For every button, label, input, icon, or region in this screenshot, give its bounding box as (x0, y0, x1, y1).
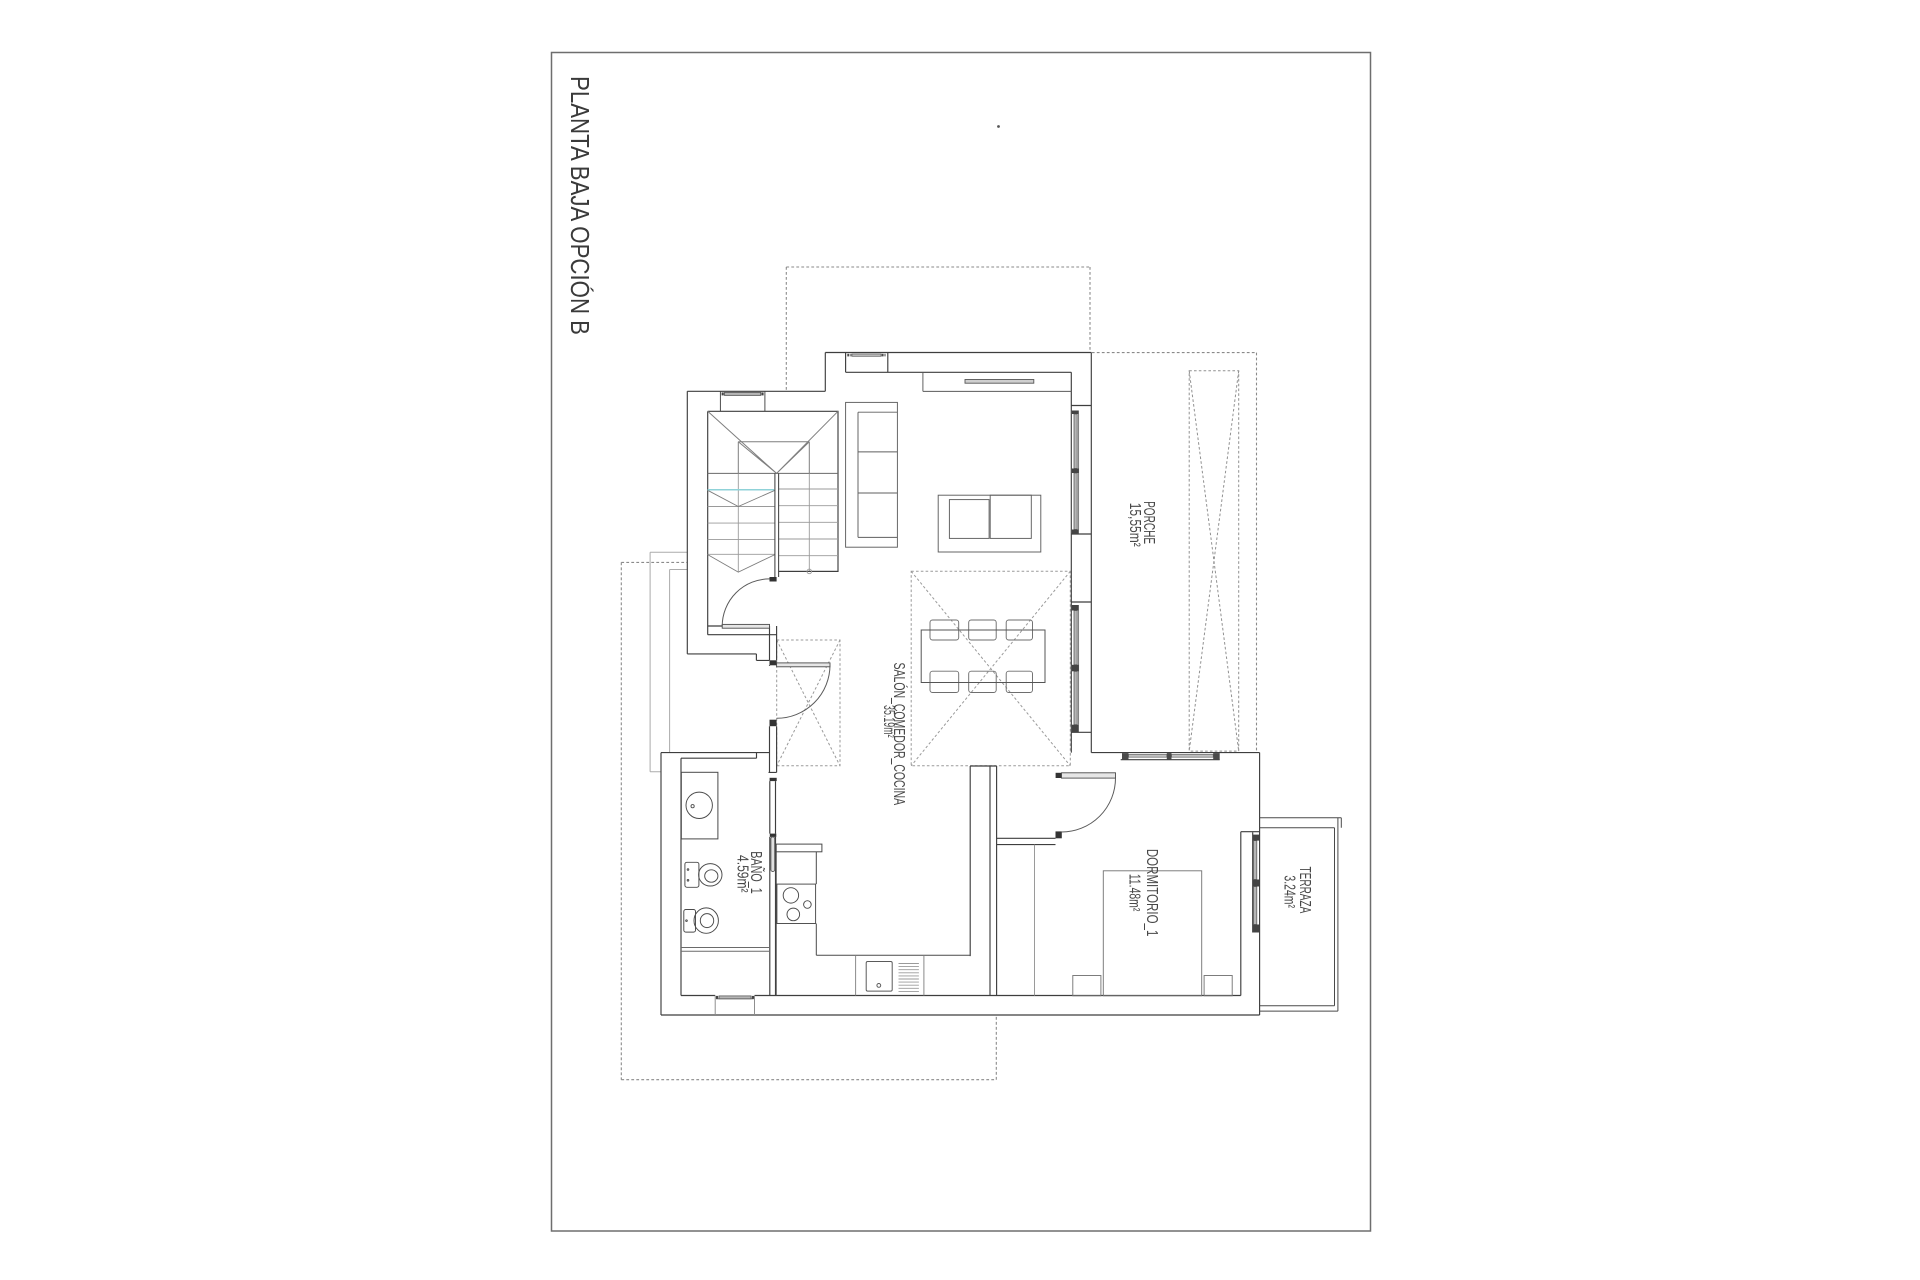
svg-text:3.24m²: 3.24m² (1281, 875, 1298, 908)
svg-text:PLANTA BAJA OPCIÓN B: PLANTA BAJA OPCIÓN B (565, 76, 595, 335)
svg-text:11.48m²: 11.48m² (1126, 874, 1143, 912)
svg-text:TERRAZA: TERRAZA (1296, 867, 1313, 914)
svg-text:15,55m²: 15,55m² (1126, 503, 1143, 547)
svg-text:4.59m²: 4.59m² (734, 855, 751, 893)
svg-text:35.19m²: 35.19m² (880, 705, 897, 738)
svg-text:DORMITORIO_1: DORMITORIO_1 (1143, 849, 1160, 937)
